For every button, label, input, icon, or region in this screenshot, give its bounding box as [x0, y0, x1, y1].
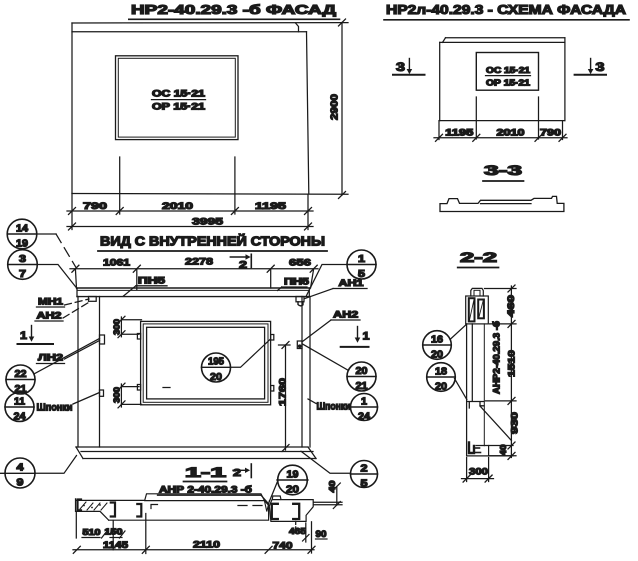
- svg-text:14: 14: [16, 224, 28, 235]
- svg-text:20: 20: [286, 484, 299, 496]
- svg-text:МН1: МН1: [38, 297, 64, 308]
- svg-text:3-3: 3-3: [484, 163, 523, 178]
- svg-text:465: 465: [289, 526, 306, 536]
- svg-text:19: 19: [16, 239, 28, 250]
- svg-text:9: 9: [17, 478, 25, 489]
- svg-text:1-1: 1-1: [185, 465, 227, 480]
- svg-text:20: 20: [210, 371, 222, 383]
- svg-text:4: 4: [17, 463, 25, 474]
- svg-text:19: 19: [287, 470, 299, 481]
- svg-text:20: 20: [431, 350, 443, 361]
- svg-text:ОР 15·21: ОР 15·21: [486, 79, 531, 88]
- svg-text:1: 1: [358, 254, 366, 265]
- svg-text:ОР 15·21: ОР 15·21: [152, 102, 205, 112]
- svg-text:Шпонки: Шпонки: [37, 403, 73, 414]
- svg-text:20: 20: [435, 382, 447, 393]
- svg-text:18: 18: [435, 367, 447, 378]
- svg-text:40: 40: [499, 444, 508, 456]
- svg-text:1145: 1145: [103, 540, 128, 550]
- svg-text:90: 90: [316, 529, 327, 539]
- svg-text:3995: 3995: [192, 217, 224, 228]
- svg-text:740: 740: [273, 541, 293, 552]
- svg-text:ОС 15·21: ОС 15·21: [486, 66, 531, 75]
- svg-text:790: 790: [83, 201, 107, 212]
- svg-text:ОС 15·21: ОС 15·21: [152, 89, 205, 99]
- svg-text:21: 21: [356, 381, 368, 392]
- svg-text:3: 3: [596, 60, 605, 74]
- svg-text:22: 22: [15, 369, 27, 380]
- svg-text:7: 7: [19, 269, 27, 280]
- svg-text:20: 20: [356, 366, 368, 377]
- svg-text:2110: 2110: [193, 540, 220, 551]
- svg-text:1195: 1195: [445, 128, 473, 138]
- svg-text:460: 460: [506, 295, 516, 317]
- svg-text:2: 2: [361, 464, 369, 475]
- svg-text:5: 5: [361, 479, 369, 490]
- svg-text:ВИД С ВНУТРЕННЕЙ СТОРОНЫ: ВИД С ВНУТРЕННЕЙ СТОРОНЫ: [100, 234, 325, 249]
- svg-text:1: 1: [20, 330, 27, 342]
- svg-text:510: 510: [83, 527, 101, 537]
- svg-text:АНР2-40.29.3 -б: АНР2-40.29.3 -б: [492, 321, 502, 394]
- svg-text:АН2: АН2: [333, 310, 358, 321]
- svg-text:40: 40: [327, 480, 337, 492]
- svg-text:24: 24: [358, 412, 370, 423]
- svg-text:ЛН2: ЛН2: [38, 353, 63, 364]
- svg-text:300: 300: [112, 387, 122, 403]
- svg-text:2278: 2278: [185, 257, 213, 268]
- svg-text:2010: 2010: [497, 128, 525, 138]
- svg-text:ПН5: ПН5: [284, 277, 310, 288]
- svg-text:24: 24: [14, 412, 26, 423]
- svg-text:3: 3: [19, 254, 27, 265]
- svg-text:195: 195: [208, 357, 224, 368]
- svg-text:2: 2: [239, 259, 247, 271]
- svg-text:790: 790: [540, 128, 561, 138]
- svg-text:АН1: АН1: [339, 278, 365, 289]
- svg-text:АН2: АН2: [37, 311, 62, 322]
- svg-text:ПН5: ПН5: [138, 276, 166, 287]
- svg-text:300: 300: [112, 319, 122, 335]
- svg-text:1510: 1510: [507, 350, 518, 377]
- svg-text:930: 930: [510, 412, 521, 434]
- svg-text:1: 1: [363, 331, 370, 343]
- svg-text:НР2л-40.29.3 - СХЕМА ФАСАДА: НР2л-40.29.3 - СХЕМА ФАСАДА: [386, 2, 627, 17]
- svg-text:3: 3: [396, 60, 405, 74]
- svg-text:НР2-40.29.3 -б ФАСАД: НР2-40.29.3 -б ФАСАД: [131, 2, 337, 17]
- svg-text:2: 2: [233, 467, 241, 479]
- svg-text:2010: 2010: [162, 201, 193, 212]
- svg-text:300: 300: [469, 467, 488, 478]
- svg-text:1061: 1061: [103, 258, 131, 269]
- svg-text:11: 11: [14, 397, 25, 408]
- svg-text:1: 1: [361, 397, 367, 408]
- svg-text:656: 656: [289, 258, 311, 269]
- svg-text:1760: 1760: [278, 378, 289, 406]
- svg-text:Шпонки: Шпонки: [317, 402, 351, 413]
- svg-text:1195: 1195: [255, 201, 287, 212]
- svg-text:2900: 2900: [330, 93, 341, 120]
- svg-text:2-2: 2-2: [460, 250, 497, 265]
- svg-text:16: 16: [431, 335, 443, 346]
